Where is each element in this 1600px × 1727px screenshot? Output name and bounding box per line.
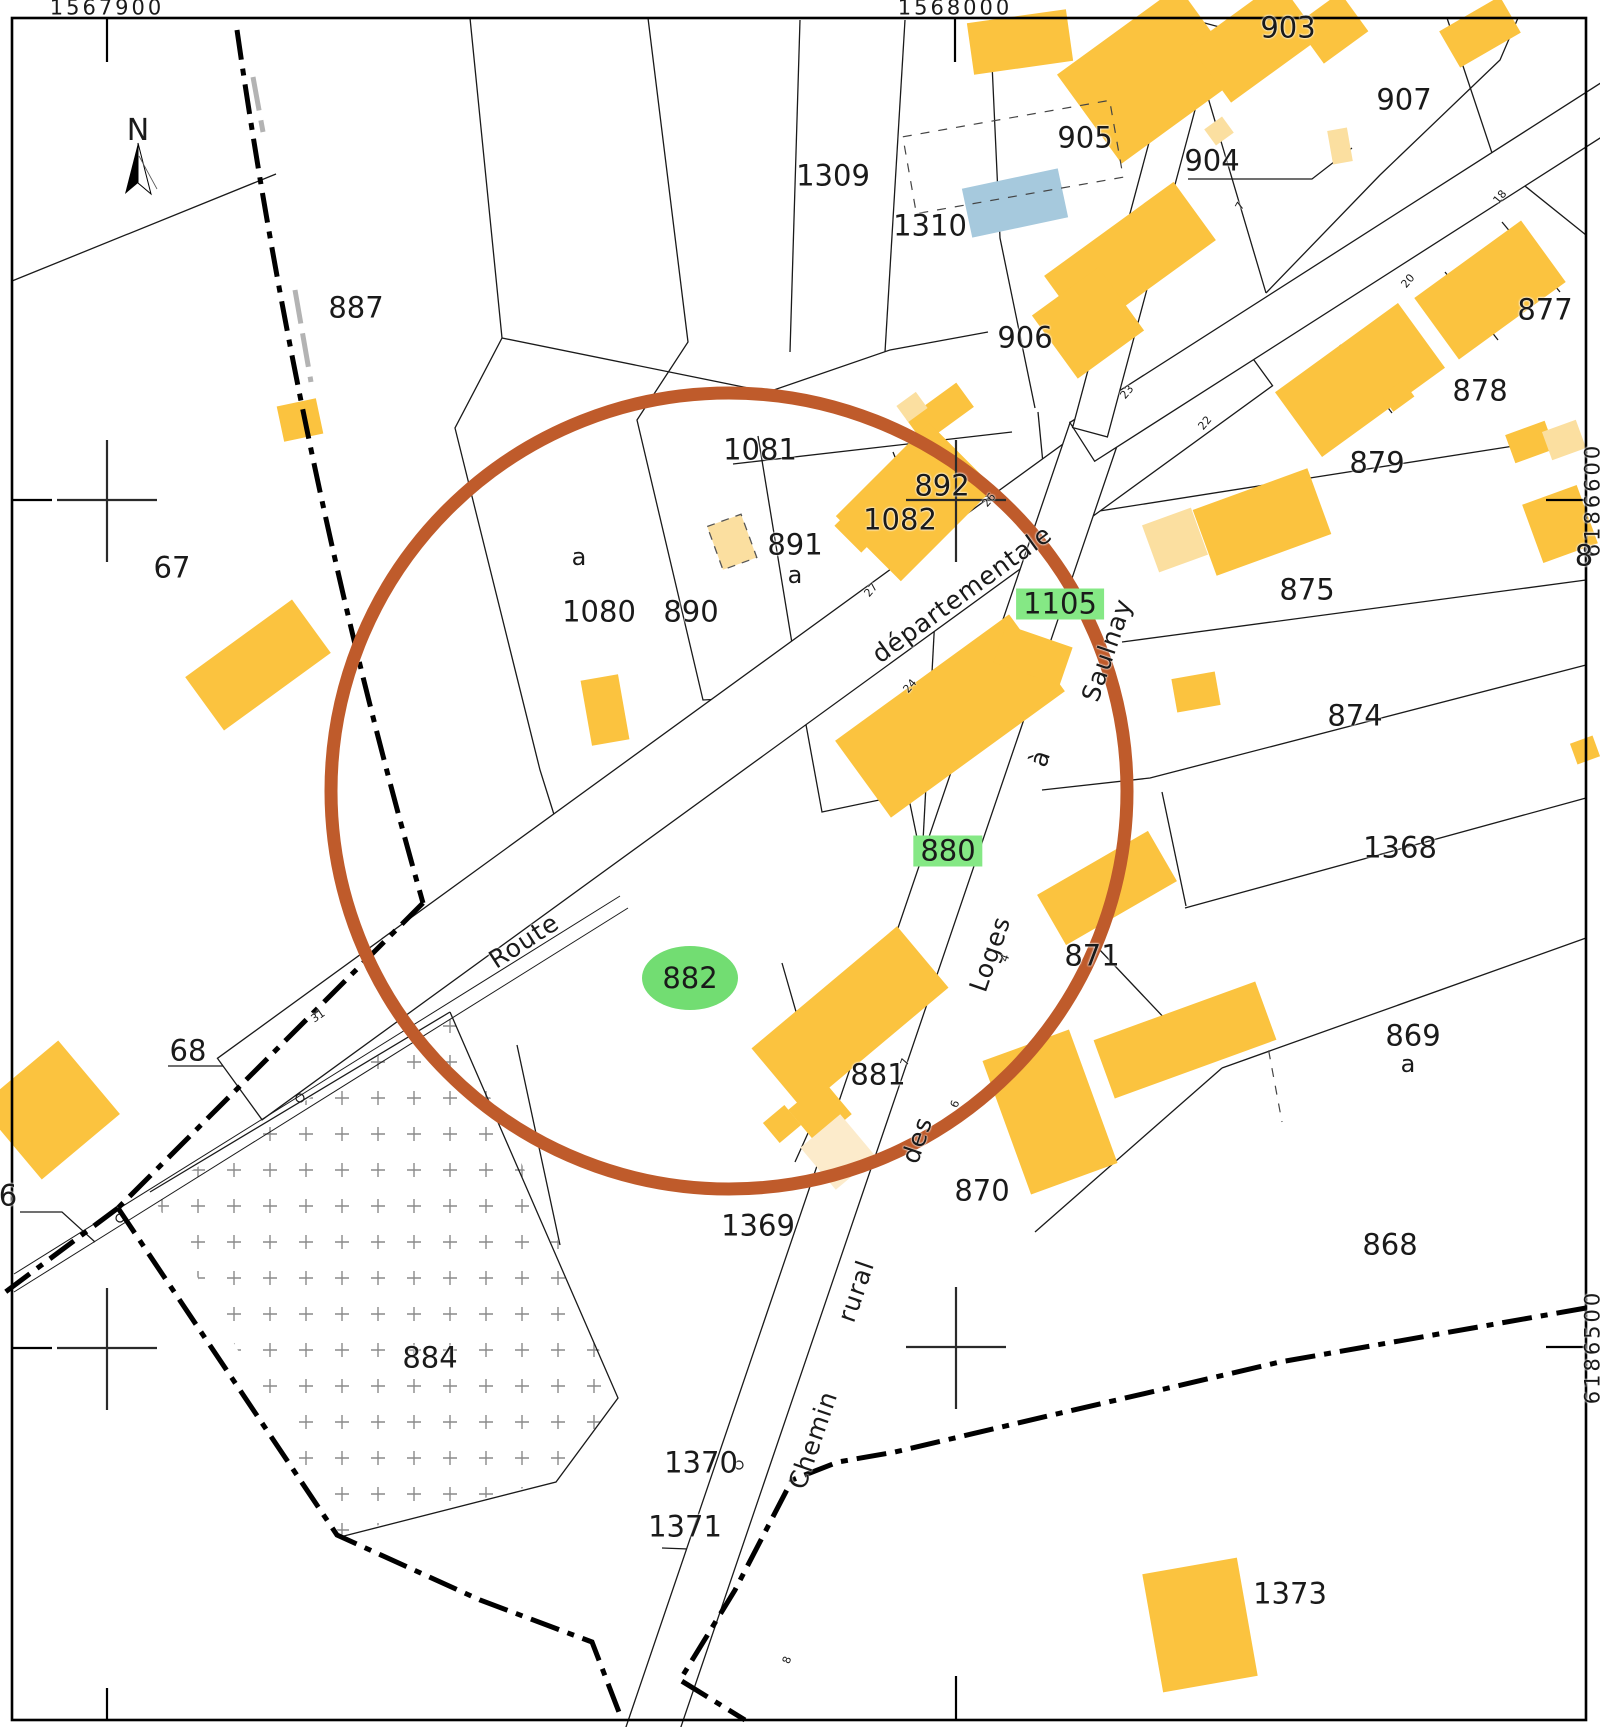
hatch-area-884 <box>152 1012 618 1535</box>
roads <box>14 17 1600 1727</box>
cadastral-map: N 15679001568000618660061865006186600618… <box>0 0 1600 1727</box>
north-arrow-icon <box>125 143 157 194</box>
map-geometry <box>0 0 1600 1727</box>
highlight-circle <box>331 393 1127 1189</box>
